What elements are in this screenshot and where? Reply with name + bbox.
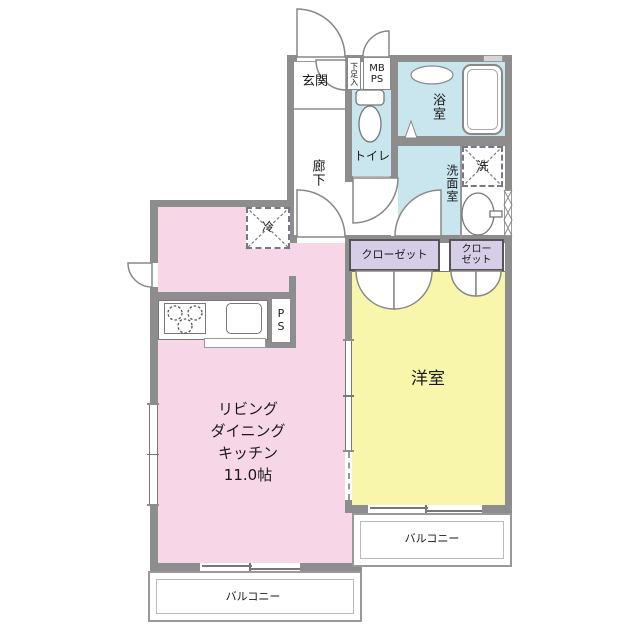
balcony-right-label: バルコニー [352,531,512,547]
washroom-door-swing [395,190,441,236]
ldk-line: キッチン [218,442,278,464]
shoe-box-text: 下足入 [349,62,358,86]
toilet-label: トイレ [348,148,396,166]
toilet-text: トイレ [354,150,390,164]
balcony-bottom-text: バルコニー [226,591,281,604]
closet-main-fold-door [356,271,394,309]
closet-sub-fold-door [476,271,501,296]
closet-sub-label: クロー ゼット [449,239,504,271]
ldk-outside-door-swing [128,263,152,287]
floor-plan: 玄関 下足入 MB PS 廊下 トイレ 浴室 洗面室 洗 冷 P S クローゼッ… [0,0,640,640]
washroom-sink [462,193,502,235]
western-room-label: 洋室 [378,366,478,394]
ldk-label: リビング ダイニング キッチン 11.0帖 [163,396,333,488]
ldk-line: 11.0帖 [224,464,272,486]
bathroom-label: 浴室 [428,83,445,131]
stove-burners [168,306,202,333]
pipe-space-line: P [278,308,285,321]
hallway-label: 廊下 [307,150,325,196]
fridge-label: 冷 [246,207,290,249]
ldk-line: ダイニング [210,420,285,442]
closet-sub-line: ゼット [462,255,492,267]
closet-sub-line: クロー [462,244,492,256]
fridge-text: 冷 [262,221,274,235]
closet-sub-fold-door [451,271,476,296]
entrance-label: 玄関 [292,72,338,92]
duct-hatch-lines [504,190,512,236]
western-room-text: 洋室 [411,370,445,390]
toilet-door-swing [353,178,398,223]
meter-box-line: PS [371,74,383,86]
meter-door-swing [363,31,389,57]
washroom-label: 洗面室 [443,147,459,219]
closet-main-text: クローゼット [362,249,428,262]
balcony-right-text: バルコニー [405,533,460,546]
washer-text: 洗 [476,160,488,174]
fixtures-overlay [0,0,640,640]
meter-box-line: MB [369,63,385,75]
closet-main-fold-door [394,271,432,309]
toilet-fixture [356,90,384,142]
pipe-space-line: S [278,321,285,334]
washer-label: 洗 [462,146,503,187]
ldk-line: リビング [218,398,278,420]
hall-ldk-door-swing [297,190,345,237]
bathroom-text: 浴室 [429,93,444,121]
washroom-text: 洗面室 [444,164,458,203]
meter-box-label: MB PS [363,58,391,90]
closet-main-label: クローゼット [349,239,440,271]
entrance-door-swing [297,9,345,57]
entrance-text: 玄関 [302,75,328,90]
pipe-space-label: P S [272,299,290,342]
hallway-text: 廊下 [309,159,324,187]
bathroom-door-mark [405,121,417,138]
balcony-bottom-label: バルコニー [163,589,343,605]
bathroom-counter [411,66,453,84]
shoe-box-label: 下足入 [347,58,361,90]
